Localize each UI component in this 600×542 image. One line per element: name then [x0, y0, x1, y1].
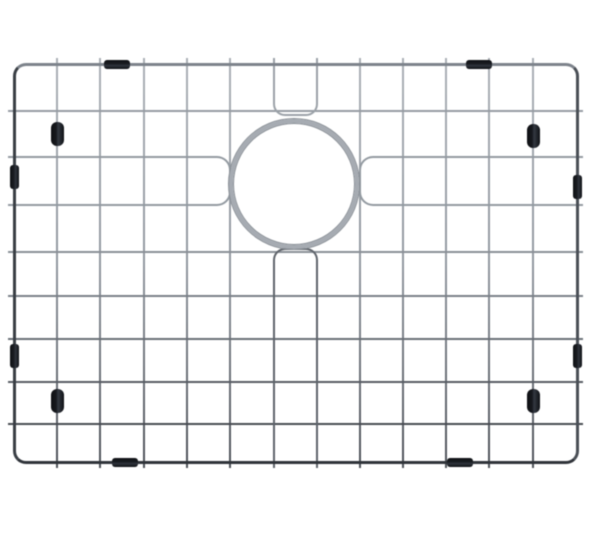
frame-bumper-left — [10, 165, 19, 189]
rubber-foot — [51, 122, 64, 146]
rubber-foot — [51, 389, 64, 413]
drain-opening-ring — [229, 119, 359, 249]
frame-bumper-top — [466, 60, 492, 69]
frame-bumper-right — [573, 344, 582, 368]
frame-bumper-top — [104, 60, 130, 69]
sink-grid-photo — [0, 0, 600, 542]
frame-bumper-left — [10, 344, 19, 368]
rubber-foot — [527, 389, 540, 413]
rubber-foot — [527, 124, 540, 148]
sink-grid-scene — [0, 0, 600, 542]
frame-bumper-bottom — [447, 458, 473, 467]
frame-bumper-right — [573, 175, 582, 199]
frame-bumper-bottom — [112, 458, 138, 467]
